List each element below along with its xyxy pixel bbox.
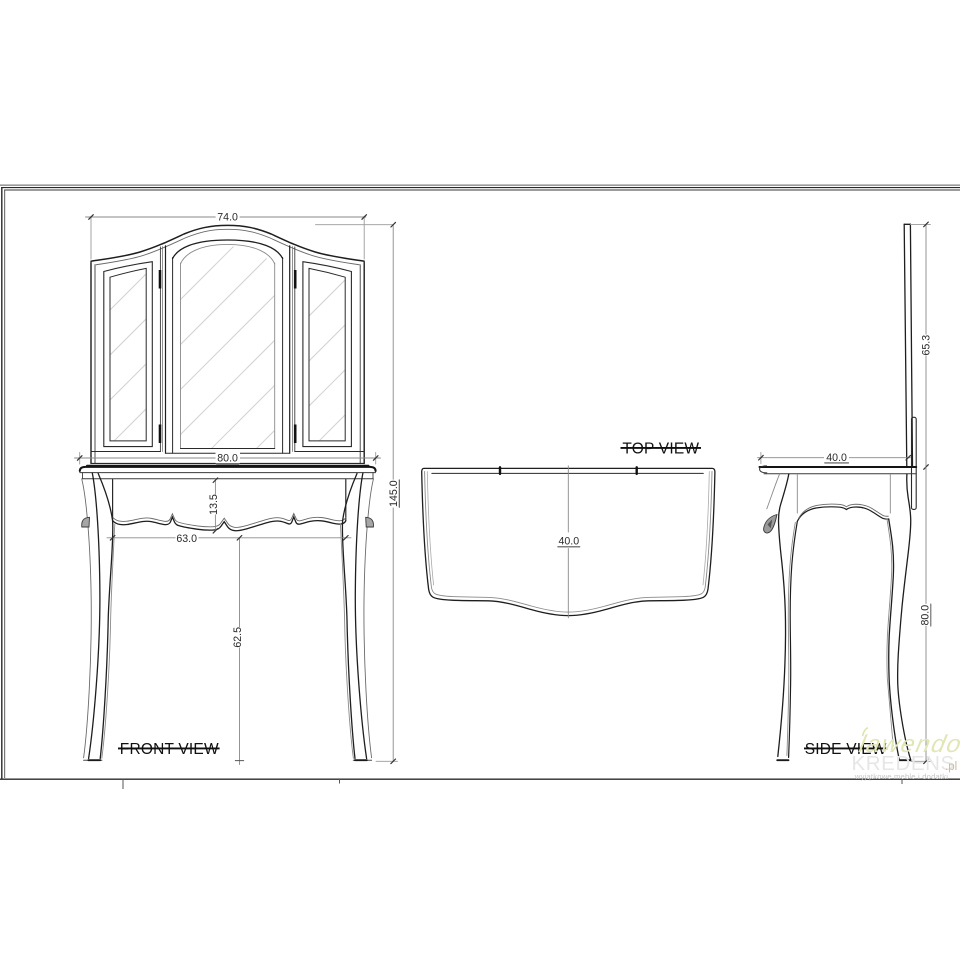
svg-text:62.5: 62.5 (232, 627, 244, 648)
svg-text:13.5: 13.5 (208, 494, 220, 515)
svg-text:145.0: 145.0 (388, 480, 400, 507)
svg-text:65.3: 65.3 (920, 335, 932, 356)
svg-text:80.0: 80.0 (920, 605, 932, 626)
svg-text:80.0: 80.0 (217, 452, 238, 464)
svg-text:wyjątkowe meble i dodatki: wyjątkowe meble i dodatki (854, 772, 948, 781)
svg-text:40.0: 40.0 (558, 535, 579, 547)
svg-text:63.0: 63.0 (176, 533, 197, 545)
svg-text:74.0: 74.0 (217, 211, 238, 223)
